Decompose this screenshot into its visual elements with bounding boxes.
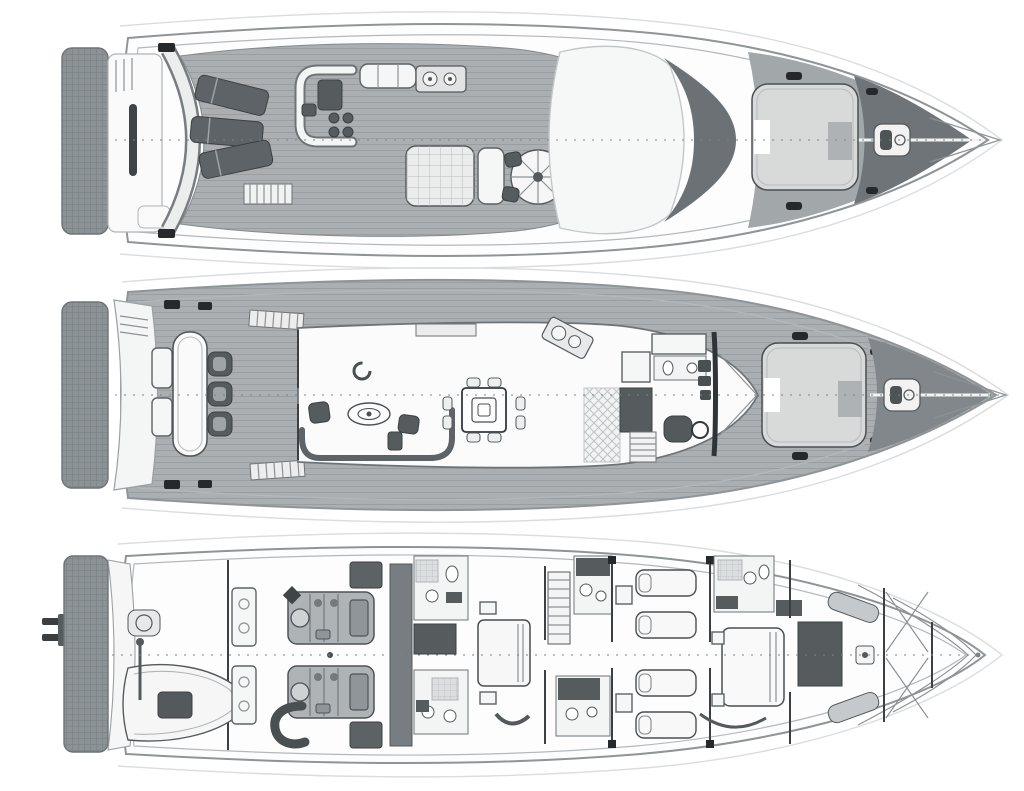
main-deck-plan xyxy=(62,268,1008,522)
mooring-bollard xyxy=(198,302,212,310)
frame-mark xyxy=(706,740,714,748)
side-table xyxy=(388,432,402,450)
bar-stool xyxy=(343,127,353,137)
shower-tiles xyxy=(432,678,458,700)
flybridge-swim-platform xyxy=(62,48,108,234)
sink xyxy=(687,363,697,373)
yacht-ga-plan-sheet xyxy=(0,0,1024,791)
toilet xyxy=(446,566,458,582)
nightstand xyxy=(712,694,724,706)
mooring-cleat xyxy=(792,452,808,460)
dining-chair xyxy=(467,378,480,387)
galley-cabinet xyxy=(622,352,650,382)
dashboard xyxy=(714,332,716,456)
aft-deck-chair xyxy=(208,412,232,436)
sideboard xyxy=(416,324,476,336)
intake-plenum xyxy=(350,722,382,748)
vanity xyxy=(446,592,462,603)
dining-chair xyxy=(488,378,501,387)
mooring-cleat xyxy=(164,300,180,309)
console-unit xyxy=(698,360,711,372)
lower-deck-plan xyxy=(42,533,1002,777)
rail-stanchion xyxy=(866,88,878,95)
tender-engine xyxy=(158,692,192,718)
deck-plans-drawing xyxy=(0,0,1024,791)
staircase xyxy=(548,572,570,644)
intake-plenum xyxy=(350,562,382,588)
aft-deck-chair xyxy=(208,382,232,406)
single-bed xyxy=(636,570,696,596)
mooring-cleat xyxy=(786,72,802,80)
toilet xyxy=(444,710,456,722)
bar-stool xyxy=(329,127,339,137)
settee-table xyxy=(318,80,342,110)
wet-bar xyxy=(416,66,466,92)
nightstand xyxy=(616,586,632,604)
salon-chair xyxy=(397,414,419,435)
console-unit xyxy=(698,376,711,386)
toilet xyxy=(596,591,606,601)
sun-pad-headrest xyxy=(838,381,862,417)
nightstand xyxy=(712,632,724,644)
sink xyxy=(744,572,756,584)
settee-stool xyxy=(302,104,316,116)
sink xyxy=(566,708,578,720)
vanity xyxy=(576,558,610,576)
main-foredeck-sun-pad xyxy=(762,343,866,447)
helm-seat xyxy=(664,416,692,442)
hardtop-brow xyxy=(549,46,684,233)
foredeck-sun-pad xyxy=(752,84,858,190)
frame-mark xyxy=(608,740,616,748)
port-ensuite-bathroom xyxy=(414,556,468,620)
frame-mark xyxy=(608,556,616,564)
sink xyxy=(580,584,592,596)
anchor-windlass xyxy=(874,124,910,156)
lower-transom-platform xyxy=(64,556,108,752)
dining-chair xyxy=(443,416,452,429)
wardrobe xyxy=(414,624,456,654)
mooring-cleat xyxy=(792,332,808,340)
vip-bathroom xyxy=(714,556,774,612)
transom-steps xyxy=(108,54,170,232)
bar-stool xyxy=(329,113,339,123)
shower-tiles xyxy=(416,560,438,582)
helm-chair xyxy=(502,186,520,203)
helm-chair xyxy=(504,151,522,168)
guest-bathroom-port xyxy=(574,556,612,614)
single-bed xyxy=(636,612,696,638)
equipment-cabinet xyxy=(232,588,256,646)
sun-pad-headrest xyxy=(828,122,852,160)
dining-chair xyxy=(516,416,525,429)
aft-deck-chair xyxy=(208,352,232,376)
frame-mark xyxy=(706,556,714,564)
salon-chair xyxy=(308,401,331,424)
arch-foot xyxy=(158,43,175,52)
flybridge-deck-plan xyxy=(62,12,1002,268)
nightstand xyxy=(480,692,496,704)
sun-loungers xyxy=(190,74,274,179)
single-bed xyxy=(636,670,696,696)
vanity xyxy=(558,678,600,700)
vanity xyxy=(716,596,738,609)
toilet xyxy=(663,361,673,375)
galley-sole-tiles xyxy=(584,388,620,462)
flybridge-stairs xyxy=(244,184,292,204)
toilet xyxy=(759,565,769,579)
bow-point xyxy=(976,653,981,658)
guest-bathroom-starboard xyxy=(556,676,610,736)
nightstand xyxy=(616,694,632,712)
bar-stool xyxy=(343,113,353,123)
toilet xyxy=(587,707,597,717)
stairs-down xyxy=(630,432,656,462)
side-seat xyxy=(478,148,504,204)
dining-chair xyxy=(516,397,525,410)
mooring-bollard xyxy=(198,480,212,488)
shower-tiles xyxy=(718,560,742,580)
starboard-ensuite-bathroom xyxy=(414,670,468,734)
chart-cabinet xyxy=(652,334,706,354)
nightstand xyxy=(480,602,496,614)
side-stairs-up xyxy=(250,460,305,480)
rail-stanchion xyxy=(866,187,878,194)
mooring-cleat xyxy=(164,480,180,489)
transom-seat-module xyxy=(152,348,172,388)
equipment-cabinet xyxy=(232,666,256,724)
mooring-cleat xyxy=(786,202,802,210)
dining-chair xyxy=(443,397,452,410)
transom-seat-module xyxy=(152,398,172,436)
main-transom xyxy=(114,300,158,490)
dining-chair xyxy=(488,433,501,442)
single-bed xyxy=(636,712,696,738)
dining-chair xyxy=(467,433,480,442)
stern-ladder xyxy=(42,614,65,646)
side-stairs-up xyxy=(249,310,304,330)
liferaft-canister xyxy=(128,610,160,636)
arch-foot xyxy=(158,229,175,238)
sun-pad-notch xyxy=(754,120,770,154)
main-swim-platform xyxy=(62,302,108,488)
sink xyxy=(426,590,438,602)
wardrobe-locker xyxy=(798,622,842,686)
bench-seat xyxy=(360,64,416,88)
port-engine xyxy=(288,592,374,644)
vip-double-bed xyxy=(722,628,784,706)
double-bed xyxy=(478,620,530,686)
vanity xyxy=(416,700,429,712)
